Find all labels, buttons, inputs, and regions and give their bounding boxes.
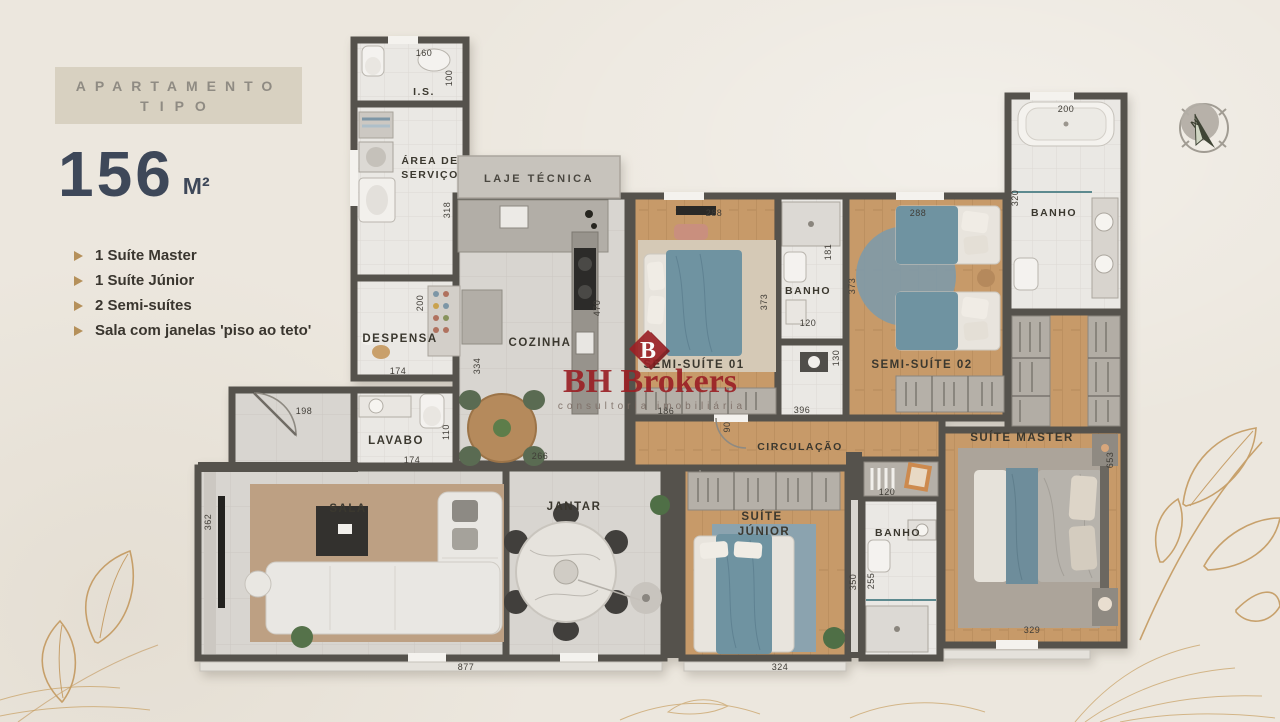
dim-174a: 174 — [390, 366, 407, 376]
dim-174b: 174 — [404, 455, 421, 465]
dim-362: 362 — [203, 514, 213, 531]
balcony-ledge — [204, 472, 216, 654]
dim-160: 160 — [416, 48, 433, 58]
tv — [218, 496, 225, 608]
label-semi-suite-02: SEMI-SUÍTE 02 — [871, 358, 972, 371]
label-circulacao: CIRCULAÇÃO — [757, 440, 843, 453]
label-cozinha: COZINHA — [509, 337, 572, 349]
label-jantar: JANTAR — [547, 501, 602, 513]
label-area-servico-2: SERVIÇO — [401, 169, 459, 181]
logo-name: BH Brokers — [563, 363, 737, 400]
dim-373b: 373 — [847, 278, 857, 295]
headboard — [1100, 464, 1109, 588]
side-table — [977, 269, 995, 287]
plant — [823, 627, 845, 649]
dim-255: 255 — [866, 573, 876, 590]
dim-373a: 373 — [759, 294, 769, 311]
label-despensa: DESPENSA — [362, 333, 437, 345]
dim-653: 653 — [1105, 452, 1115, 469]
label-banho-semi: BANHO — [785, 285, 831, 297]
closet — [688, 472, 840, 510]
dim-120b: 120 — [879, 487, 896, 497]
dim-877: 877 — [458, 662, 475, 672]
label-banho-junior: BANHO — [875, 527, 921, 539]
dim-350: 350 — [848, 574, 858, 591]
dim-470: 470 — [592, 300, 602, 317]
dim-181: 181 — [823, 244, 833, 261]
label-suite-junior-1: SUÍTE — [741, 510, 782, 523]
dim-110: 110 — [441, 424, 451, 440]
label-suite-junior-2: JÚNIOR — [738, 525, 790, 538]
dim-200a: 200 — [415, 295, 425, 312]
logo-tagline: consultoria imobiliária — [558, 401, 746, 412]
entry-hall — [232, 390, 354, 466]
dim-320: 320 — [1010, 190, 1020, 207]
suite-master-furniture — [958, 434, 1118, 628]
dim-130: 130 — [831, 350, 841, 367]
dim-100: 100 — [444, 70, 454, 87]
dim-90: 90 — [722, 421, 732, 432]
floorplan-page: { "sidebar": { "banner": { "line1": "APA… — [0, 0, 1280, 722]
dim-329: 329 — [1024, 625, 1041, 635]
dim-200b: 200 — [1058, 104, 1075, 114]
dim-324: 324 — [772, 662, 789, 672]
dim-288b: 288 — [910, 208, 927, 218]
dim-288a: 288 — [706, 208, 723, 218]
dim-120a: 120 — [800, 318, 817, 328]
servico-fixtures — [359, 112, 395, 222]
dim-334: 334 — [472, 358, 482, 375]
dim-318: 318 — [442, 202, 452, 219]
dim-198: 198 — [296, 406, 313, 416]
closet — [896, 376, 1004, 412]
dim-396: 396 — [794, 405, 811, 415]
label-sala: SALA — [329, 503, 366, 515]
label-laje-tecnica: LAJE TÉCNICA — [484, 172, 594, 185]
dim-266: 266 — [532, 451, 549, 461]
label-is: I.S. — [413, 86, 435, 98]
plant — [291, 626, 313, 648]
label-banho-master: BANHO — [1031, 207, 1077, 219]
compass-north-icon: N — [1180, 103, 1228, 152]
logo-monogram: B — [640, 338, 656, 364]
bed-sheet — [974, 470, 1008, 582]
bench — [674, 224, 708, 240]
floorplan-canvas: I.S. ÁREA DE SERVIÇO LAJE TÉCNICA DESPEN… — [0, 0, 1280, 722]
label-suite-master: SUÍTE MASTER — [970, 431, 1074, 444]
label-lavabo: LAVABO — [368, 435, 424, 447]
plant — [650, 495, 670, 515]
label-area-servico-1: ÁREA DE — [401, 154, 458, 167]
